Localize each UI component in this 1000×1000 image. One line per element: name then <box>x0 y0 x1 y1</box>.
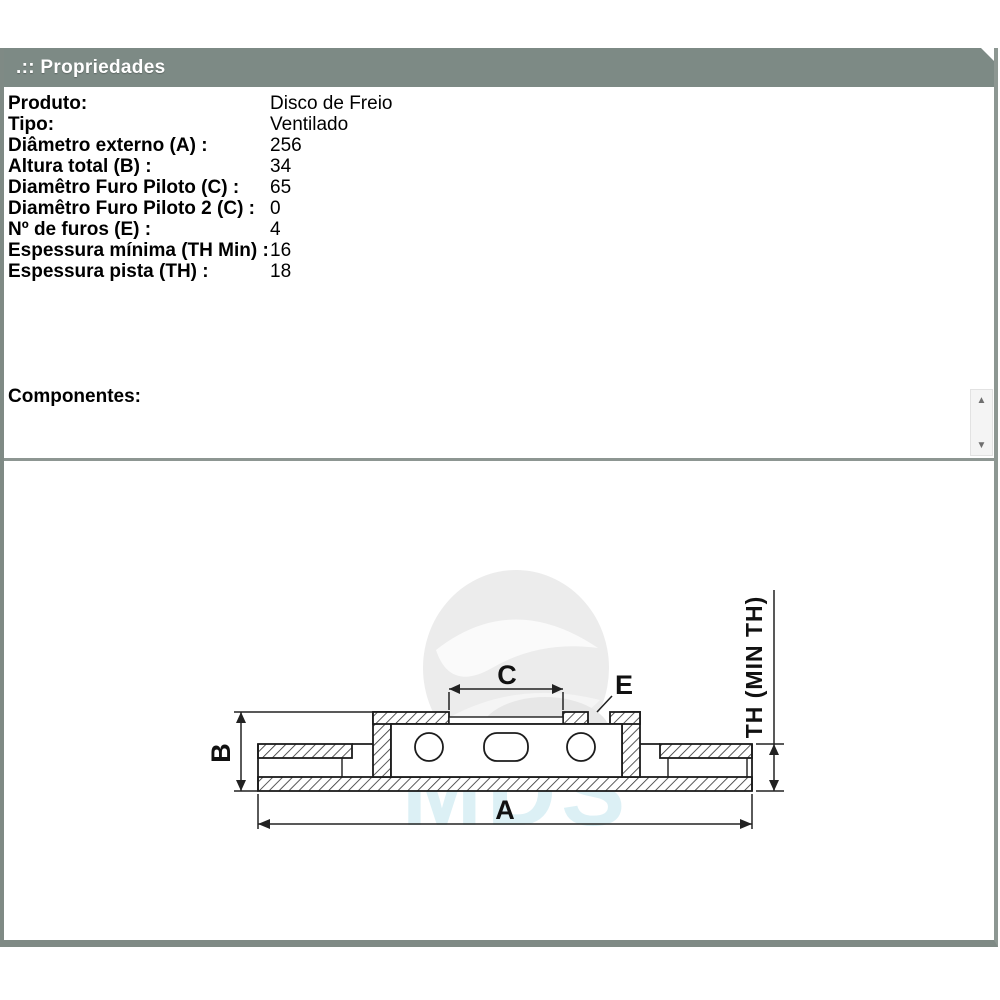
disc-cross-section <box>258 712 752 791</box>
property-label: Tipo: <box>8 114 270 135</box>
scroll-down-icon: ▼ <box>977 440 987 451</box>
hat-top-right <box>610 712 640 724</box>
property-row-diametro-externo: Diâmetro externo (A) :256 <box>8 135 393 156</box>
center-pilot-hole <box>484 733 528 761</box>
property-label: Diamêtro Furo Piloto (C) : <box>8 177 270 198</box>
property-row-furo-piloto-2: Diamêtro Furo Piloto 2 (C) :0 <box>8 198 393 219</box>
dim-label-C: C <box>497 660 517 690</box>
bolt-hole-right <box>567 733 595 761</box>
property-row-tipo: Tipo:Ventilado <box>8 114 393 135</box>
hat-top-left <box>373 712 449 724</box>
components-section-label: Componentes: <box>8 386 141 408</box>
page: { "window": { "title": ".:: Propriedades… <box>0 0 1000 1000</box>
left-outer-pad <box>258 744 352 758</box>
properties-panel: .:: Propriedades Produto:Disco de Freio … <box>0 48 998 947</box>
scroll-down-button[interactable]: ▼ <box>971 435 992 455</box>
property-row-num-furos: Nº de furos (E) :4 <box>8 219 393 240</box>
property-label: Nº de furos (E) : <box>8 219 270 240</box>
property-row-altura-total: Altura total (B) :34 <box>8 156 393 177</box>
dimension-A: A <box>258 794 752 829</box>
properties-list: Produto:Disco de Freio Tipo:Ventilado Di… <box>8 93 393 282</box>
components-scrollbar[interactable]: ▲ ▼ <box>970 389 993 456</box>
dim-label-TH: TH (MIN TH) <box>741 596 767 739</box>
property-value: 256 <box>270 135 302 156</box>
property-value: 34 <box>270 156 291 177</box>
bolt-hole-left <box>415 733 443 761</box>
bottom-plate <box>258 777 752 791</box>
property-label: Diâmetro externo (A) : <box>8 135 270 156</box>
panel-titlebar: .:: Propriedades <box>4 48 994 87</box>
dim-label-A: A <box>495 795 515 825</box>
property-value: 0 <box>270 198 281 219</box>
pilot-recess <box>449 717 563 724</box>
dim-label-B: B <box>206 743 236 763</box>
panel-title: .:: Propriedades <box>4 48 994 87</box>
property-row-produto: Produto:Disco de Freio <box>8 93 393 114</box>
property-value: 18 <box>270 261 291 282</box>
brake-disc-diagram: MDS <box>4 462 994 940</box>
property-value: 65 <box>270 177 291 198</box>
scroll-up-button[interactable]: ▲ <box>971 390 992 410</box>
property-label: Espessura mínima (TH Min) : <box>8 240 270 261</box>
right-outer-pad <box>660 744 752 758</box>
hat-top-mid <box>563 712 588 724</box>
property-row-espessura-minima: Espessura mínima (TH Min) :16 <box>8 240 393 261</box>
property-value: 16 <box>270 240 291 261</box>
section-divider <box>4 458 994 461</box>
dim-label-E: E <box>615 670 633 700</box>
property-row-espessura-pista: Espessura pista (TH) :18 <box>8 261 393 282</box>
scroll-up-icon: ▲ <box>977 395 987 406</box>
property-label: Produto: <box>8 93 270 114</box>
watermark-logo: MDS <box>402 570 630 846</box>
property-row-furo-piloto: Diamêtro Furo Piloto (C) :65 <box>8 177 393 198</box>
property-value: Ventilado <box>270 114 348 135</box>
property-label: Espessura pista (TH) : <box>8 261 270 282</box>
property-label: Diamêtro Furo Piloto 2 (C) : <box>8 198 270 219</box>
property-value: 4 <box>270 219 281 240</box>
property-label: Altura total (B) : <box>8 156 270 177</box>
property-value: Disco de Freio <box>270 93 393 114</box>
